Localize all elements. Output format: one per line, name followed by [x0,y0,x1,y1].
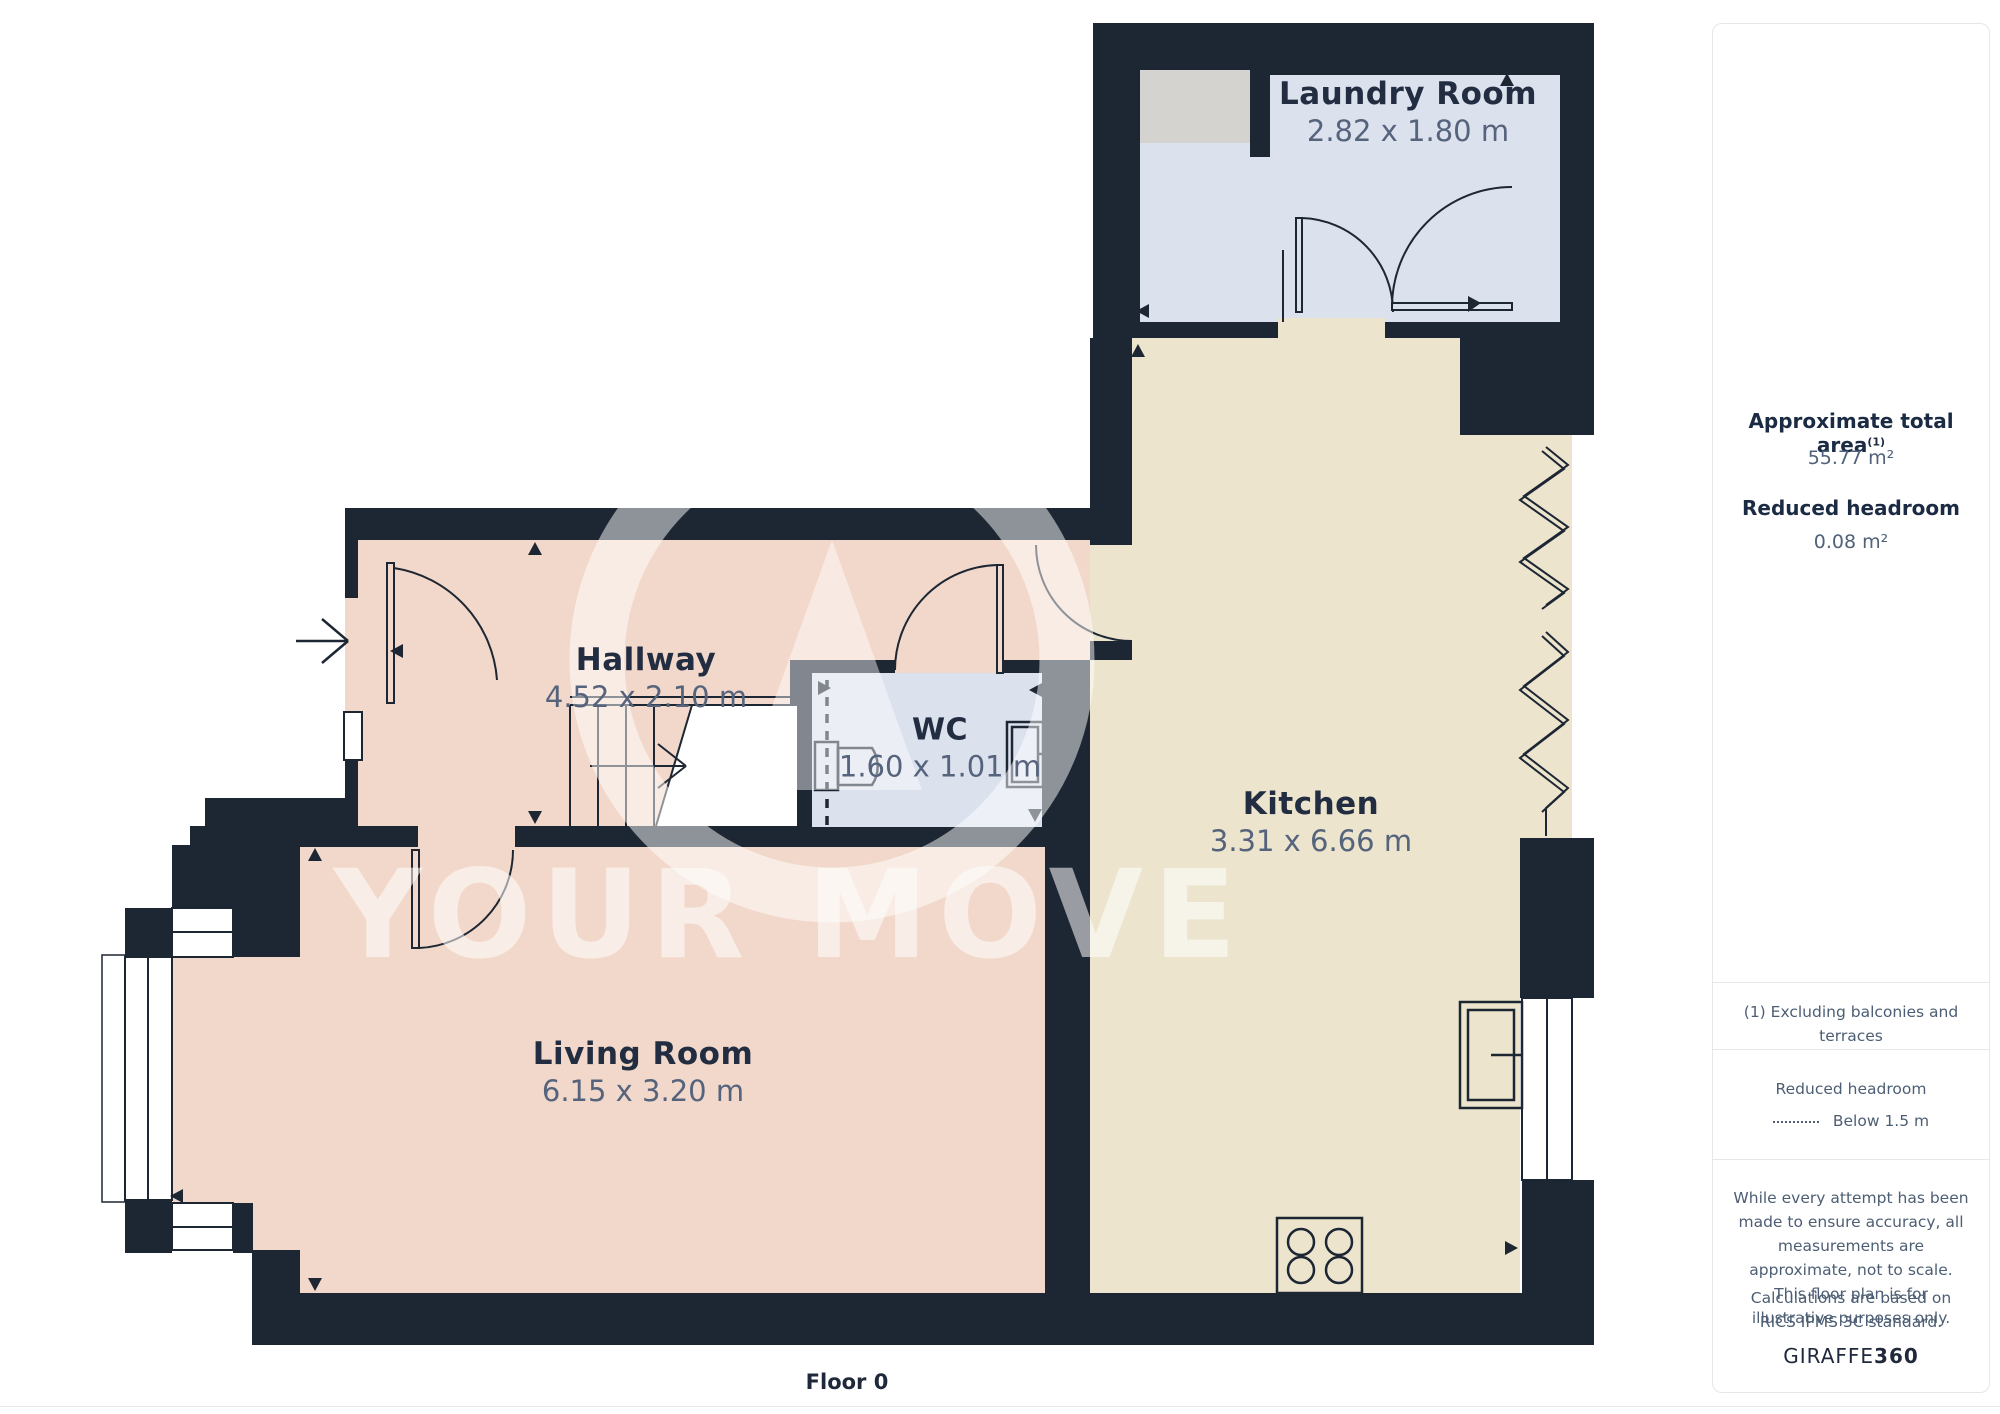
laundry-dims: 2.82 x 1.80 m [1279,114,1537,148]
brand-bold: 360 [1874,1344,1919,1368]
divider [1713,982,1989,983]
floorplan-drawing [0,0,1604,1414]
reduced-headroom-label: Reduced headroom [1713,496,1989,520]
entrance-arrow-icon [296,619,348,663]
brand-regular: GIRAFFE [1783,1344,1874,1368]
hallway-name: Hallway [545,642,747,678]
window-front [344,712,362,760]
total-area-value: 55.77 m² [1713,447,1989,469]
laundry-name: Laundry Room [1279,76,1537,112]
floorplan-page: Laundry Room 2.82 x 1.80 m Hallway 4.52 … [0,0,2000,1414]
room-label-laundry: Laundry Room 2.82 x 1.80 m [1279,76,1537,148]
hallway-dims: 4.52 x 2.10 m [545,680,747,714]
room-label-living: Living Room 6.15 x 3.20 m [533,1036,754,1108]
washing-machine-icon [1140,70,1250,143]
room-label-hallway: Hallway 4.52 x 2.10 m [545,642,747,714]
kitchen-name: Kitchen [1210,786,1412,822]
wc-dims: 1.60 x 1.01 m [839,750,1041,784]
legend-row: Below 1.5 m [1713,1109,1989,1133]
legend-item: Below 1.5 m [1833,1112,1929,1130]
reduced-headroom-dash-sample [1773,1121,1819,1123]
giraffe360-logo: GIRAFFE360 [1713,1344,1989,1368]
divider [1713,1049,1989,1050]
living-name: Living Room [533,1036,754,1072]
divider [1713,1159,1989,1160]
legend-title: Reduced headroom [1713,1077,1989,1101]
living-dims: 6.15 x 3.20 m [533,1074,754,1108]
room-label-wc: WC 1.60 x 1.01 m [839,713,1041,784]
floor-label: Floor 0 [806,1370,889,1394]
info-sidebar: Approximate total area(1) 55.77 m² Reduc… [1712,23,1990,1393]
wc-name: WC [839,713,1041,748]
reduced-headroom-value: 0.08 m² [1713,531,1989,553]
page-bottom-rule [0,1406,2000,1407]
disclaimer-2: Calculations are based on RICS IPMS 3C s… [1713,1286,1989,1334]
footnote: (1) Excluding balconies and terraces [1713,1000,1989,1048]
watermark-text: YOUR MOVE [334,844,1247,986]
